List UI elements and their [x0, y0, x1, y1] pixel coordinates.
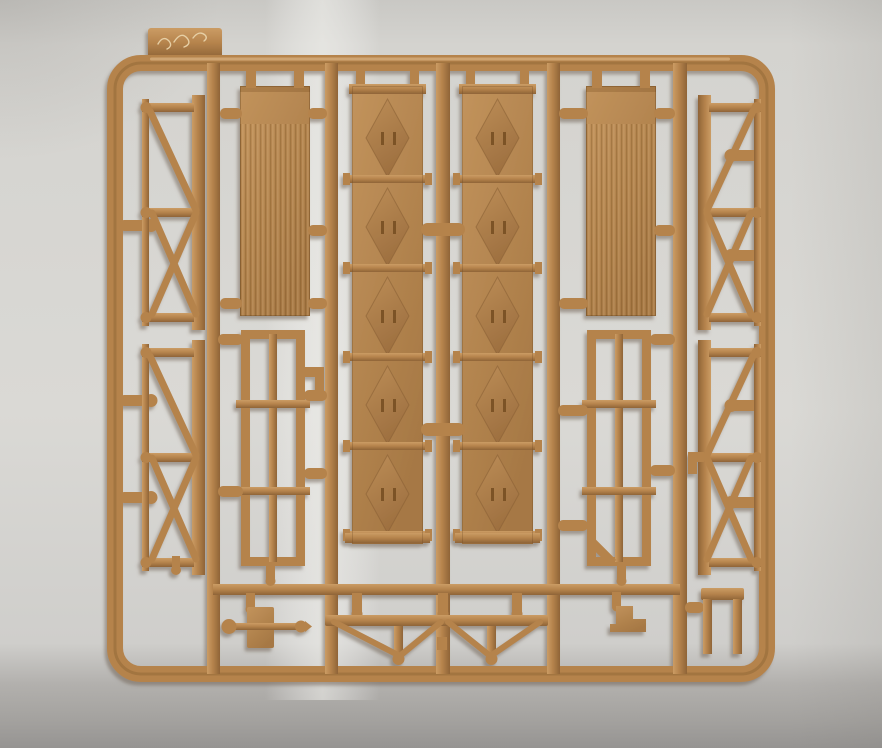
mold-tab: mold tab with scratched marking	[148, 28, 222, 58]
runner-v1	[207, 63, 220, 674]
part-braced-door-right: segmented panel with pressed diamond sti…	[453, 84, 542, 544]
photo-of-model-kit-sprue: Tan plastic injection-molded model-kit s…	[0, 0, 882, 748]
part-planked-panel-right: planked wall panel (right)	[586, 86, 656, 316]
part-planked-panel-left: planked wall panel (left)	[240, 86, 310, 316]
sprue-photo-canvas: Tan plastic injection-molded model-kit s…	[0, 0, 882, 748]
part-lattice-frame-left: open lattice frame with centre mullion (…	[236, 334, 310, 562]
runner-v5	[673, 63, 687, 674]
runner-v3	[436, 63, 450, 674]
runner-v4	[547, 63, 560, 674]
part-lattice-frame-right: open lattice frame with centre mullion, …	[582, 334, 656, 562]
part-braced-door-left: segmented panel with pressed diamond sti…	[343, 84, 432, 544]
runner-v2	[325, 63, 338, 674]
